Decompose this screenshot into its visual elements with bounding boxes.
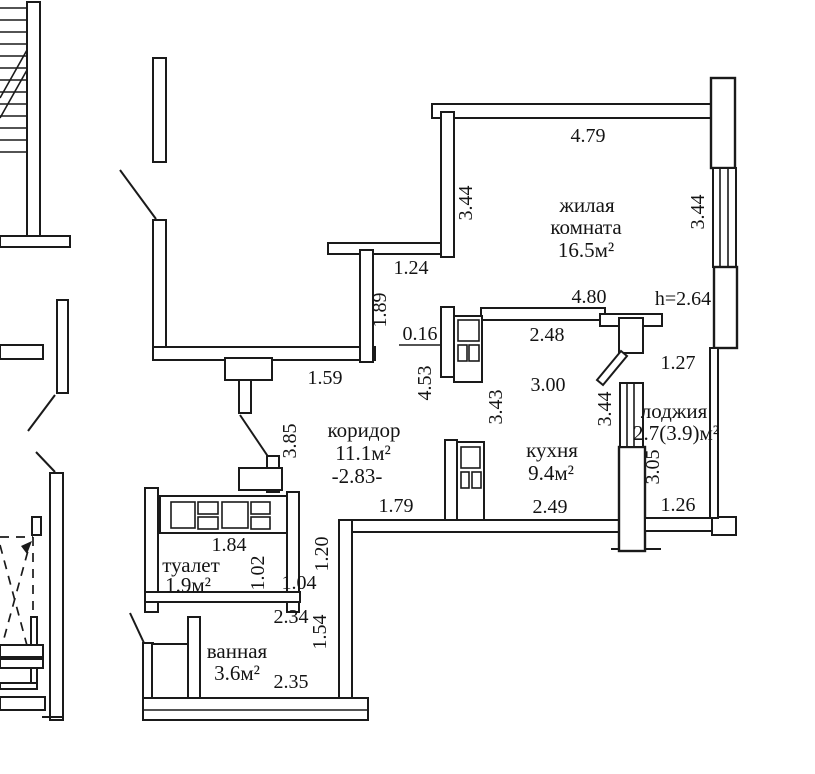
dim-living-top: 4.79 (571, 125, 606, 147)
wall (339, 520, 623, 532)
dim-loggia-wall: 3.44 (594, 392, 616, 427)
ceiling-height-note: h=2.64 (655, 288, 711, 310)
wall-pier (711, 78, 735, 168)
elevator-shaft (0, 517, 45, 710)
dim-kitchen-height: 3.43 (485, 390, 507, 425)
shaft-notch (32, 517, 41, 535)
dim-living-bottom: 4.80 (572, 286, 607, 308)
bath-name: ванная (207, 639, 268, 663)
wall (441, 112, 454, 257)
window-right (713, 168, 736, 267)
door-leaf (454, 316, 482, 382)
wall-pier (714, 267, 737, 348)
dim-loggia-side: 3.05 (642, 450, 664, 485)
stair-treads (0, 8, 27, 152)
wall (0, 645, 43, 657)
wall (339, 520, 352, 720)
door-swing-line (240, 415, 269, 458)
wall (27, 2, 40, 243)
stairwell (0, 2, 70, 247)
door-jamb (619, 318, 643, 353)
dim-living-left: 3.44 (455, 186, 477, 221)
dim-loggia-bottom: 1.26 (661, 494, 696, 516)
wall (50, 473, 63, 720)
wall (57, 300, 68, 393)
bottom-outer-wall (143, 698, 368, 720)
dim-corridor-top: 2.48 (530, 324, 565, 346)
wall-pier (712, 517, 736, 535)
wall (153, 220, 166, 355)
living-room-name-line2: комната (550, 215, 622, 239)
wall (153, 58, 166, 162)
corridor-area: 11.1м² (335, 441, 391, 465)
dim-corridor-bottom: 1.79 (379, 495, 414, 517)
floor-plan-sheet: жилая комната 16.5м² коридор 11.1м² -2.8… (0, 0, 815, 774)
wall-pier (239, 468, 282, 490)
living-room-area: 16.5м² (558, 238, 614, 262)
kitchen-area: 9.4м² (528, 461, 574, 485)
loggia-area: 2.7(3.9)м² (633, 421, 719, 445)
wall-pier (225, 358, 272, 380)
door-jamb (445, 440, 457, 520)
wall (645, 518, 712, 531)
dim-wall-lower: 1.54 (309, 615, 331, 650)
door-swing-line (130, 613, 144, 643)
dim-corridor-left: 3.85 (279, 424, 301, 459)
wall (188, 617, 200, 700)
door-swing-line (36, 452, 55, 472)
door-leaf (457, 442, 484, 520)
wall (239, 380, 251, 413)
living-room-name-line1: жилая (558, 193, 615, 217)
wall (0, 659, 43, 668)
dim-hall-opening: 1.24 (394, 257, 429, 279)
duct-box (152, 644, 188, 700)
wall (0, 683, 37, 689)
kitchen-door (445, 440, 484, 520)
wall (0, 345, 43, 359)
wall (432, 104, 713, 118)
stair-direction-lines (0, 50, 27, 118)
dim-toilet-right: 1.02 (247, 556, 269, 591)
bath-area: 3.6м² (214, 661, 260, 685)
corridor-note: -2.83- (332, 464, 383, 488)
wall (0, 236, 70, 247)
dim-kitchen-bottom: 2.49 (533, 496, 568, 518)
arrowhead (21, 541, 32, 554)
loggia-name: лоджия (641, 399, 708, 423)
door-swing-line (28, 395, 55, 431)
wall (0, 697, 45, 710)
dim-lobby-width: 1.04 (282, 572, 317, 594)
dim-kitchen-top: 3.00 (531, 374, 566, 396)
dim-corridor-wall: 4.53 (414, 366, 436, 401)
wall (481, 308, 605, 320)
dim-door-offset: 0.16 (403, 323, 438, 345)
dim-toilet-top: 1.84 (212, 534, 247, 556)
kitchen-name: кухня (526, 438, 578, 462)
toilet-bath-doors (160, 496, 290, 533)
wall (328, 243, 443, 254)
dim-hall-bottom: 1.59 (308, 367, 343, 389)
corridor-name: коридор (327, 418, 400, 442)
entrance-door-swing-line (120, 170, 156, 219)
dim-loggia-top: 1.27 (661, 352, 696, 374)
dim-bath-bottom: 2.35 (274, 671, 309, 693)
floor-plan-drawing: жилая комната 16.5м² коридор 11.1м² -2.8… (0, 0, 815, 774)
dim-bath-top: 2.34 (274, 606, 309, 628)
door-jamb (441, 307, 454, 377)
room-labels: жилая комната 16.5м² коридор 11.1м² -2.8… (162, 193, 719, 685)
loggia-door-leaf (597, 351, 627, 385)
dim-living-right: 3.44 (687, 195, 709, 230)
toilet-area: 1.9м² (165, 573, 211, 597)
dim-wall-upper: 1.20 (311, 537, 333, 572)
dim-hall-wall: 1.89 (369, 293, 391, 328)
